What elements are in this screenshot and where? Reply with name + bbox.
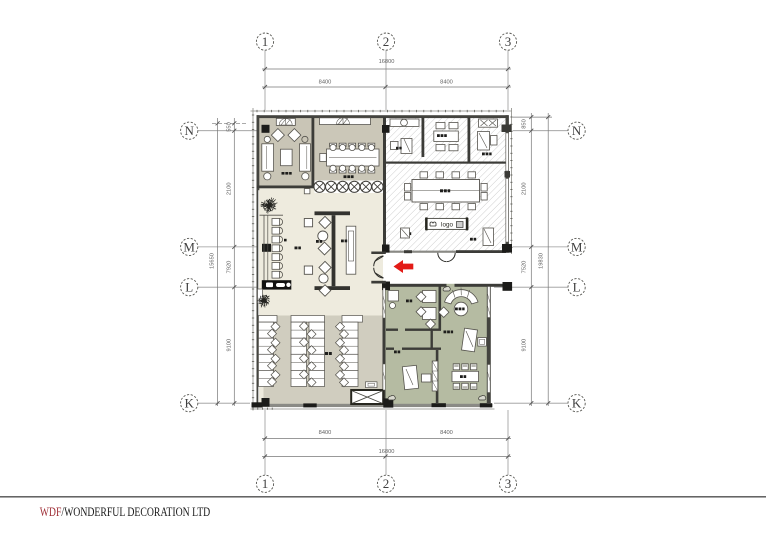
svg-text:8400: 8400 xyxy=(440,80,453,86)
svg-text:2: 2 xyxy=(383,476,390,491)
svg-text:7520: 7520 xyxy=(522,261,528,274)
svg-text:2100: 2100 xyxy=(522,182,528,195)
svg-text:1: 1 xyxy=(262,476,269,491)
svg-text:N: N xyxy=(572,123,582,138)
svg-text:8400: 8400 xyxy=(319,80,332,86)
svg-text:16800: 16800 xyxy=(379,449,395,455)
svg-text:N: N xyxy=(185,123,195,138)
svg-text:K: K xyxy=(185,396,195,411)
svg-text:3: 3 xyxy=(505,34,512,49)
svg-text:2: 2 xyxy=(383,34,390,49)
svg-text:logo: logo xyxy=(441,222,453,229)
svg-text:2100: 2100 xyxy=(226,182,232,195)
svg-text:WDF/WONDERFUL DECORATION LTD: WDF/WONDERFUL DECORATION LTD xyxy=(40,505,211,519)
svg-text:19830: 19830 xyxy=(538,253,544,269)
svg-text:K: K xyxy=(572,396,582,411)
svg-text:3: 3 xyxy=(505,476,512,491)
svg-text:9100: 9100 xyxy=(226,339,232,352)
svg-text:9100: 9100 xyxy=(522,339,528,352)
svg-text:1: 1 xyxy=(262,34,269,49)
svg-text:550: 550 xyxy=(226,122,232,132)
svg-text:8400: 8400 xyxy=(319,430,332,436)
svg-text:850: 850 xyxy=(522,119,528,129)
svg-text:15650: 15650 xyxy=(210,253,216,269)
svg-text:8400: 8400 xyxy=(440,430,453,436)
svg-text:M: M xyxy=(571,239,583,254)
svg-text:L: L xyxy=(573,280,581,295)
svg-text:16800: 16800 xyxy=(379,59,395,65)
svg-text:L: L xyxy=(185,280,193,295)
svg-text:M: M xyxy=(183,239,195,254)
svg-text:7920: 7920 xyxy=(226,261,232,274)
